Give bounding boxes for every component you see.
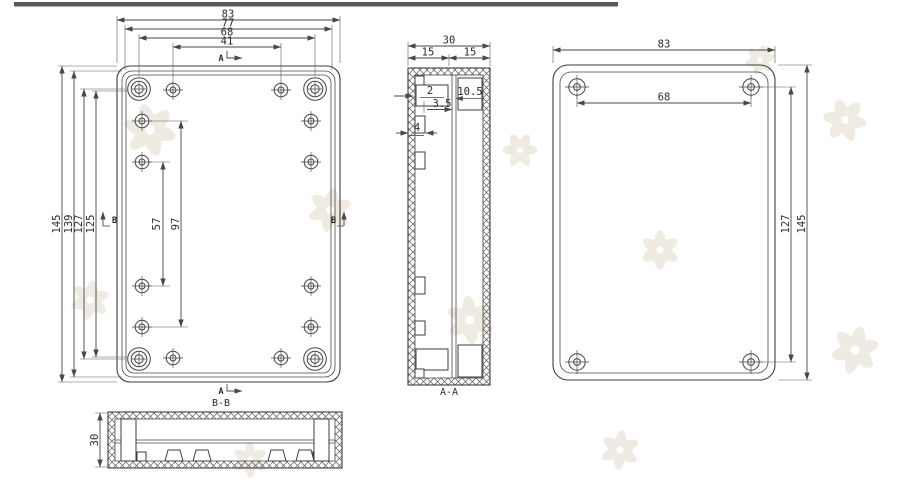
dim-front-height-inner: 125 [85,91,128,357]
section-aa-view: 30 15 15 2 3.5 10.5 4 A-A [394,35,490,399]
marker-label: A [218,54,223,64]
section-marker-a-top: A [218,51,242,64]
corner-holes [565,75,763,374]
marker-label: B [331,216,336,226]
split-line [115,440,335,443]
marker-label: B [112,216,117,226]
dim-aa-depth-halves: 15 15 [408,47,490,67]
dim-label: 30 [89,434,101,447]
dim-label: 4 [414,122,420,134]
dim-label: 2 [427,85,433,97]
section-label-aa: A-A [440,387,458,398]
dim-aa-rib-width: 4 [396,122,437,136]
dim-label: 15 [422,47,435,59]
top-rule [14,2,618,7]
back-view: 83 68 127 145 [553,39,812,381]
dim-back-hole-span-h: 68 [577,92,751,108]
dim-back-hole-span-v: 127 [760,87,796,362]
marker-label: A [218,387,223,397]
dim-aa-pocket-depth: 10.5 [456,86,484,99]
dim-label: 3.5 [433,98,452,110]
dim-label: 145 [796,215,808,234]
dim-label: 145 [51,215,63,234]
dim-label: 41 [221,36,234,48]
section-label-bb: B-B [212,398,230,409]
dim-front-hole-span-57: 57 [150,162,170,286]
dim-front-boss-vspan: 127 [73,89,126,359]
dim-label: 57 [151,218,163,231]
dim-back-width-outer: 83 [553,39,775,64]
section-marker-a-bottom: A [218,384,242,397]
dim-label: 83 [658,39,671,51]
dim-label: 30 [443,35,456,47]
front-view: 83 77 68 41 A A B [51,9,344,398]
dim-label: 97 [170,218,182,231]
dim-label: 125 [85,215,97,234]
section-marker-b-left: B [103,212,117,226]
dim-bb-depth: 30 [89,413,108,467]
dim-label: 127 [780,215,792,234]
dim-label: 15 [464,47,477,59]
section-bb-view: B-B 30 [89,398,342,468]
engineering-drawing: 83 77 68 41 A A B [0,0,900,500]
drawing-sheet: 83 77 68 41 A A B [0,0,900,500]
dim-label: 10.5 [457,86,482,98]
dim-label: 127 [73,215,85,234]
dim-label: 68 [658,92,671,104]
